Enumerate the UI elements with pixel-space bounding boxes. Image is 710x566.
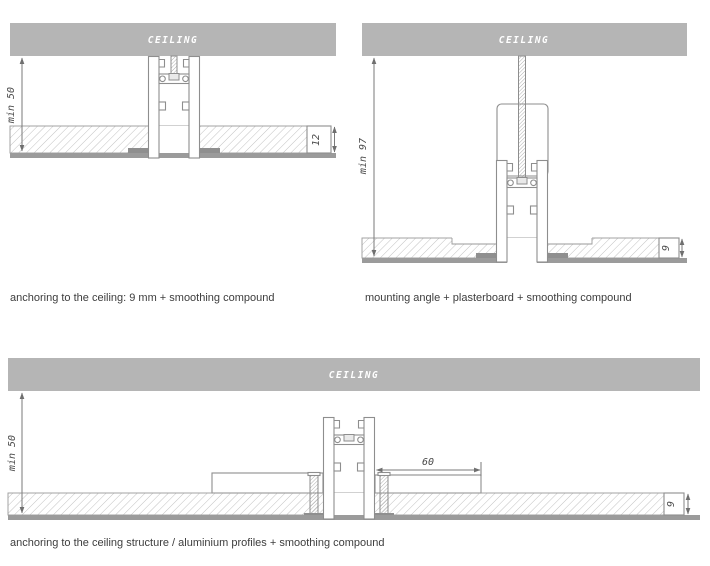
dimension-board-thickness: 9	[659, 238, 682, 258]
dimension-height-label: min 50	[6, 87, 17, 124]
profile-flange-right	[200, 148, 220, 153]
ceiling-label: CEILING	[148, 35, 199, 46]
page: CEILING min 50 12 CEILING	[0, 0, 710, 566]
dimension-board-thickness: 9	[664, 493, 688, 515]
technical-drawing: CEILING min 50 12 CEILING	[0, 0, 710, 566]
dimension-board-label: 12	[311, 134, 322, 146]
aluminium-support-left	[212, 473, 323, 493]
profile-flange-right	[548, 253, 568, 258]
dimension-board-thickness: 12	[307, 126, 335, 153]
caption-anchor-structure: anchoring to the ceiling structure / alu…	[10, 537, 385, 549]
threaded-rod	[519, 56, 526, 182]
profile-flange-left	[128, 148, 148, 153]
aluminium-support-right	[375, 475, 481, 493]
diagram-anchor-structure: CEILING min 50 60	[7, 358, 700, 520]
finished-surface	[10, 153, 336, 158]
dimension-height-label: min 50	[7, 435, 18, 472]
ceiling-label: CEILING	[499, 35, 550, 46]
finished-surface	[8, 515, 700, 520]
dimension-height: min 97	[358, 58, 374, 256]
dimension-support-width: 60	[377, 457, 482, 476]
dimension-height-label: min 97	[358, 138, 369, 175]
ceiling-label: CEILING	[329, 370, 380, 381]
diagram-mounting-angle: CEILING min 97 9	[358, 23, 687, 263]
profile-flange-left	[476, 253, 496, 258]
dimension-board-label: 9	[666, 501, 677, 507]
caption-anchor-ceiling: anchoring to the ceiling: 9 mm + smoothi…	[10, 292, 274, 304]
diagram-anchor-ceiling: CEILING min 50 12	[6, 23, 336, 159]
caption-mounting-angle: mounting angle + plasterboard + smoothin…	[365, 292, 632, 304]
dimension-support-width-label: 60	[422, 457, 434, 468]
dimension-board-label: 9	[661, 245, 672, 251]
